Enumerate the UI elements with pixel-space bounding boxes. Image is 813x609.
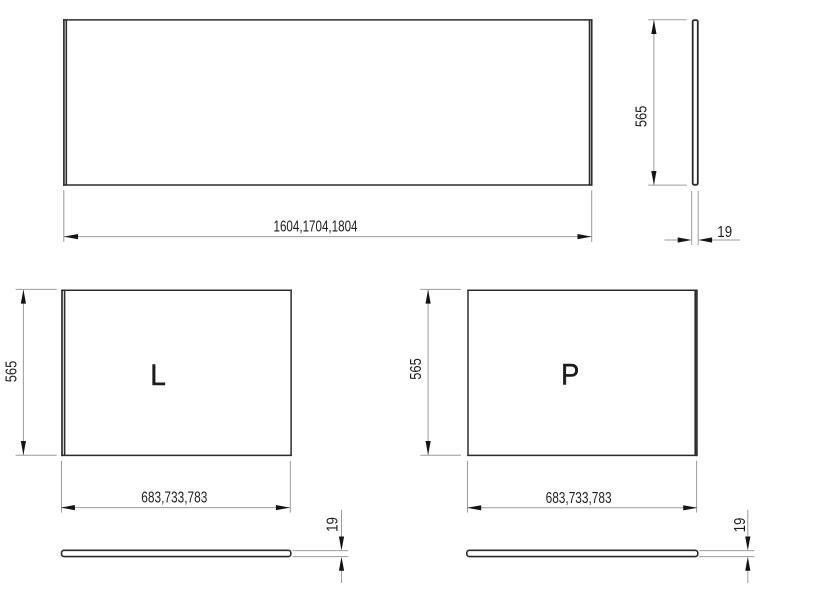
svg-text:565: 565 — [3, 361, 20, 383]
svg-text:683,733,783: 683,733,783 — [546, 490, 612, 507]
svg-text:1604,1704,1804: 1604,1704,1804 — [274, 219, 358, 236]
svg-text:19: 19 — [732, 518, 749, 533]
svg-text:P: P — [561, 358, 579, 391]
svg-text:19: 19 — [325, 517, 342, 532]
svg-text:565: 565 — [408, 358, 425, 380]
svg-text:L: L — [150, 359, 166, 392]
svg-text:565: 565 — [633, 106, 650, 128]
svg-text:19: 19 — [717, 224, 732, 241]
svg-text:683,733,783: 683,733,783 — [141, 490, 207, 507]
